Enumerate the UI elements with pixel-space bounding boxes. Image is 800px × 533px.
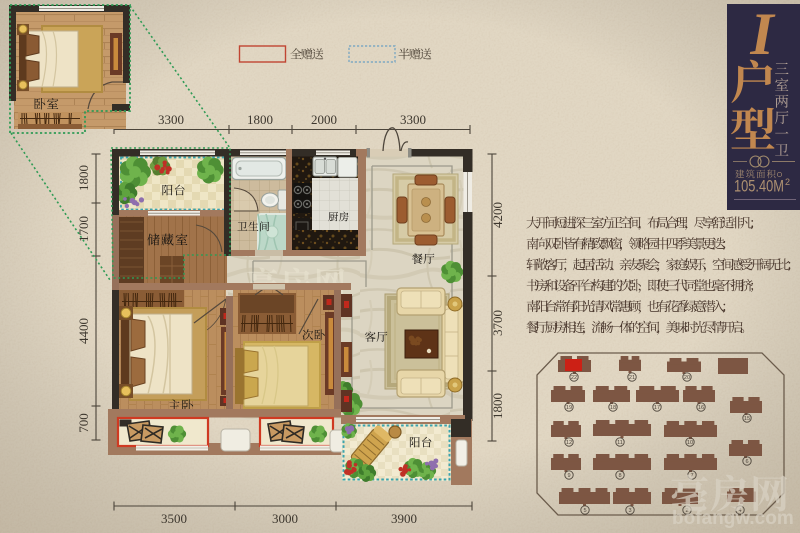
svg-text:8: 8 bbox=[618, 473, 621, 479]
svg-text:16: 16 bbox=[698, 405, 704, 411]
svg-text:2000: 2000 bbox=[311, 112, 337, 127]
svg-text:18: 18 bbox=[610, 405, 616, 411]
svg-text:700: 700 bbox=[76, 413, 91, 433]
svg-text:5: 5 bbox=[583, 508, 586, 514]
svg-text:105.40M: 105.40M bbox=[734, 177, 784, 196]
svg-text:2: 2 bbox=[785, 177, 790, 187]
svg-text:10: 10 bbox=[687, 440, 693, 446]
svg-text:bofangw.com: bofangw.com bbox=[672, 508, 794, 529]
svg-text:21: 21 bbox=[629, 375, 635, 381]
svg-text:I: I bbox=[749, 1, 776, 67]
svg-text:3700: 3700 bbox=[490, 310, 505, 336]
svg-text:22: 22 bbox=[571, 375, 577, 381]
svg-text:4400: 4400 bbox=[76, 318, 91, 344]
svg-text:4200: 4200 bbox=[490, 202, 505, 228]
svg-text:1700: 1700 bbox=[76, 216, 91, 242]
svg-text:11: 11 bbox=[617, 440, 623, 446]
svg-text:6: 6 bbox=[745, 459, 748, 465]
svg-text:3000: 3000 bbox=[272, 511, 298, 526]
svg-text:19: 19 bbox=[566, 405, 572, 411]
svg-text:3900: 3900 bbox=[391, 511, 417, 526]
svg-text:3: 3 bbox=[628, 508, 631, 514]
svg-text:3500: 3500 bbox=[161, 511, 187, 526]
svg-text:1800: 1800 bbox=[490, 393, 505, 419]
svg-text:20: 20 bbox=[684, 375, 690, 381]
svg-text:3300: 3300 bbox=[400, 112, 426, 127]
svg-text:9: 9 bbox=[567, 473, 570, 479]
svg-text:17: 17 bbox=[654, 405, 660, 411]
svg-text:3300: 3300 bbox=[158, 112, 184, 127]
svg-text:1800: 1800 bbox=[76, 165, 91, 191]
svg-text:12: 12 bbox=[566, 440, 572, 446]
svg-text:1800: 1800 bbox=[247, 112, 273, 127]
svg-text:15: 15 bbox=[744, 416, 750, 422]
